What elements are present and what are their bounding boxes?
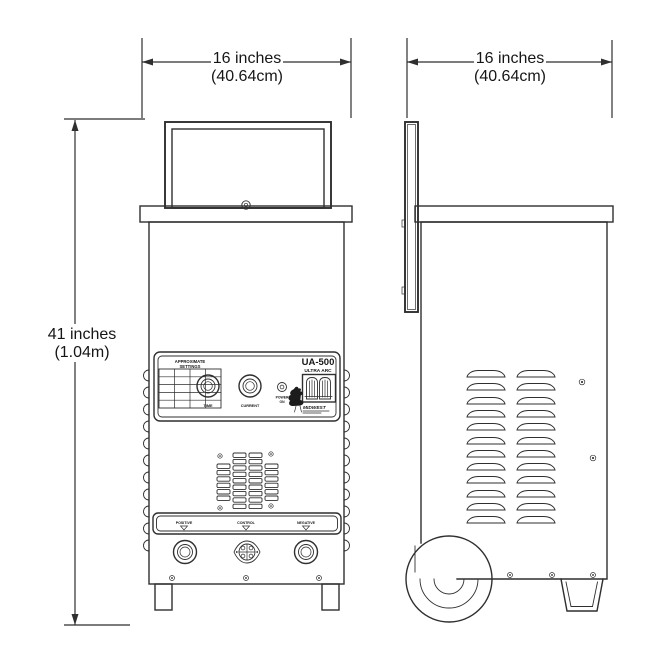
model-label: UA-500 bbox=[302, 357, 335, 368]
height-dimension: 41 inches (1.04m) bbox=[40, 119, 145, 625]
brand-text: MIDWEST bbox=[303, 405, 327, 411]
positive-terminal bbox=[174, 541, 197, 564]
arrowhead-right-icon bbox=[340, 59, 351, 66]
cooling-fins-right bbox=[344, 370, 350, 551]
arrowhead-right-icon bbox=[601, 59, 612, 66]
arrowhead-top-icon bbox=[72, 120, 79, 131]
side-foot bbox=[561, 579, 603, 611]
power-label-line2: ON bbox=[279, 400, 285, 404]
front-width-metric: (40.64cm) bbox=[211, 68, 283, 85]
chart-title-line2: SETTINGS bbox=[180, 364, 201, 369]
control-connector bbox=[234, 541, 260, 563]
positive-label: POSITIVE bbox=[176, 521, 193, 525]
width-dimension-front: 16 inches (40.64cm) bbox=[142, 38, 351, 118]
chassis-screws bbox=[170, 576, 322, 581]
time-knob-label: TIME bbox=[203, 404, 213, 408]
time-knob bbox=[197, 375, 219, 397]
front-width-imperial: 16 inches bbox=[213, 50, 282, 67]
current-knob-label: CURRENT bbox=[241, 404, 260, 408]
arrowhead-left-icon bbox=[142, 59, 153, 66]
control-panel: APPROXIMATE SETTINGS TIME CURRENT bbox=[154, 352, 340, 421]
power-indicator-light bbox=[278, 383, 287, 392]
model-sublabel: ULTRA ARC bbox=[304, 368, 332, 374]
brand-logo: MIDWEST bbox=[288, 387, 329, 413]
control-label: CONTROL bbox=[237, 521, 256, 525]
side-cabinet bbox=[421, 222, 607, 579]
technical-diagram: APPROXIMATE SETTINGS TIME CURRENT bbox=[0, 0, 650, 650]
arrowhead-bottom-icon bbox=[72, 614, 79, 625]
current-knob bbox=[239, 375, 261, 397]
arrow-down-icon bbox=[181, 526, 310, 530]
negative-label: NEGATIVE bbox=[297, 521, 316, 525]
cooling-fins-left bbox=[144, 370, 150, 551]
height-metric: (1.04m) bbox=[54, 344, 109, 361]
louver-panel bbox=[467, 371, 555, 524]
front-foot-left bbox=[155, 584, 172, 610]
negative-terminal bbox=[295, 541, 318, 564]
carry-handle bbox=[165, 122, 331, 208]
width-dimension-side: 16 inches (40.64cm) bbox=[407, 38, 612, 118]
vent-grille bbox=[217, 452, 278, 510]
side-width-imperial: 16 inches bbox=[476, 50, 545, 67]
power-rocker-switch bbox=[303, 375, 336, 403]
terminal-label-strip: POSITIVE CONTROL NEGATIVE bbox=[153, 513, 341, 534]
side-view bbox=[402, 122, 613, 622]
side-width-metric: (40.64cm) bbox=[474, 68, 546, 85]
side-top-cap bbox=[415, 206, 613, 222]
height-imperial: 41 inches bbox=[48, 326, 117, 343]
rooster-icon bbox=[288, 387, 303, 406]
front-view: APPROXIMATE SETTINGS TIME CURRENT bbox=[140, 122, 352, 610]
arrowhead-left-icon bbox=[407, 59, 418, 66]
front-foot-right bbox=[322, 584, 339, 610]
diagram-canvas: APPROXIMATE SETTINGS TIME CURRENT bbox=[0, 0, 650, 650]
witness-ticks bbox=[64, 119, 145, 625]
